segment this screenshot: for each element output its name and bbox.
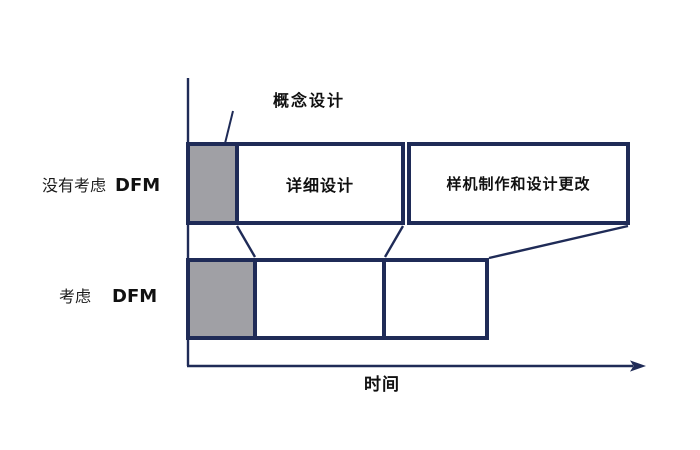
connector-concept-boundary bbox=[237, 226, 255, 257]
box-row2-prototype-and-changes bbox=[382, 258, 489, 340]
row-label-with-dfm: 考虑 DFM bbox=[59, 283, 157, 307]
box-row1-detailed-design: 详细设计 bbox=[235, 142, 405, 225]
row-label-without-dfm: 没有考虑 DFM bbox=[42, 172, 160, 196]
time-axis-label: 时间 bbox=[364, 370, 400, 395]
row-label-without-dfm-cn: 没有考虑 bbox=[42, 172, 106, 196]
box-row2-detailed-design bbox=[253, 258, 386, 340]
box-row2-concept-design bbox=[186, 258, 257, 340]
row-label-without-dfm-acronym: DFM bbox=[115, 175, 160, 196]
box-row1-concept-design bbox=[186, 142, 239, 225]
row-label-with-dfm-cn: 考虑 bbox=[59, 283, 91, 307]
axes-and-connectors bbox=[0, 0, 700, 450]
dfm-comparison-diagram: 概念设计 没有考虑 DFM 详细设计 样机制作和设计更改 考虑 DFM 时间 bbox=[0, 0, 700, 450]
connector-row-end bbox=[489, 226, 628, 258]
row-label-with-dfm-acronym: DFM bbox=[112, 286, 157, 307]
box-row1-prototype-and-changes: 样机制作和设计更改 bbox=[407, 142, 630, 225]
concept-design-annotation: 概念设计 bbox=[273, 87, 345, 111]
connector-detail-boundary bbox=[385, 226, 403, 257]
